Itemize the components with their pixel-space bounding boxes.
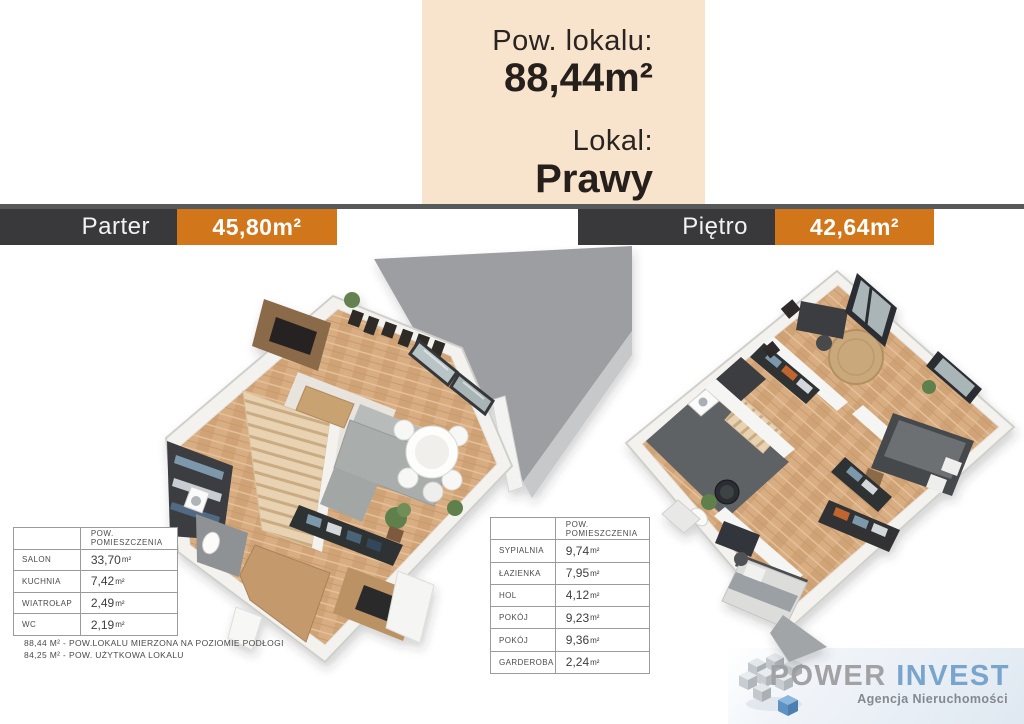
- unit-area-value: 88,44m²: [422, 57, 653, 99]
- pietro-floor-area: 42,64m²: [810, 214, 899, 241]
- area-unit: m²: [590, 569, 599, 578]
- area-value: 33,70: [91, 553, 121, 567]
- pietro-table-header: POW. POMIESZCZENIA: [556, 518, 649, 539]
- unit-info-box: Pow. lokalu: 88,44m² Lokal: Prawy: [422, 0, 705, 204]
- area-value: 2,49: [91, 596, 114, 610]
- area-unit: m²: [590, 613, 599, 622]
- table-row: SYPIALNIA9,74m²: [491, 539, 649, 561]
- area-value: 2,24: [566, 655, 589, 669]
- area-value: 9,36: [566, 633, 589, 647]
- parter-floor-area: 45,80m²: [212, 214, 301, 241]
- area-unit: m²: [590, 658, 599, 667]
- pietro-floor-area-badge: 42,64m²: [775, 209, 934, 245]
- table-row: WC2,19m²: [14, 613, 177, 635]
- area-unit: m²: [590, 591, 599, 600]
- parter-area-table: POW. POMIESZCZENIA SALON33,70m² KUCHNIA7…: [13, 527, 178, 636]
- footnote-measured-area: 88,44 M² - POW.LOKALU MIERZONA NA POZIOM…: [24, 637, 284, 649]
- unit-name-label: Lokal:: [422, 126, 653, 156]
- pietro-area-table: POW. POMIESZCZENIA SYPIALNIA9,74m² ŁAZIE…: [490, 517, 650, 674]
- pietro-floor-label: Piętro: [578, 209, 775, 245]
- area-value: 7,95: [566, 566, 589, 580]
- table-row: POKÓJ9,23m²: [491, 606, 649, 628]
- area-value: 7,42: [91, 574, 114, 588]
- area-value: 2,19: [91, 618, 114, 632]
- parter-floor-label: Parter: [0, 209, 177, 245]
- area-unit: m²: [590, 636, 599, 645]
- table-row: POKÓJ9,36m²: [491, 628, 649, 650]
- unit-name-value: Prawy: [422, 158, 653, 200]
- pietro-plan: [626, 271, 1014, 662]
- area-unit: m²: [115, 599, 124, 608]
- area-unit: m²: [590, 546, 599, 555]
- footnote-usable-area: 84,25 M² - POW. UŻYTKOWA LOKALU: [24, 649, 284, 661]
- table-row: GARDEROBA2,24m²: [491, 651, 649, 673]
- parter-floor-area-badge: 45,80m²: [177, 209, 337, 245]
- parter-table-header: POW. POMIESZCZENIA: [81, 528, 177, 549]
- area-unit: m²: [115, 620, 124, 629]
- area-value: 9,23: [566, 611, 589, 625]
- table-row: WIATROŁAP2,49m²: [14, 592, 177, 614]
- area-unit: m²: [122, 555, 131, 564]
- pietro-floor-name: Piętro: [682, 213, 748, 241]
- area-unit: m²: [115, 577, 124, 586]
- table-row: ŁAZIENKA7,95m²: [491, 562, 649, 584]
- area-footnotes: 88,44 M² - POW.LOKALU MIERZONA NA POZIOM…: [24, 637, 284, 661]
- pietro-south-wall-wedge: [770, 615, 827, 662]
- unit-area-label: Pow. lokalu:: [422, 26, 653, 56]
- area-value: 9,74: [566, 544, 589, 558]
- table-row: SALON33,70m²: [14, 549, 177, 571]
- parter-floor-name: Parter: [82, 213, 150, 241]
- table-row: HOL4,12m²: [491, 584, 649, 606]
- table-row: KUCHNIA7,42m²: [14, 570, 177, 592]
- area-value: 4,12: [566, 588, 589, 602]
